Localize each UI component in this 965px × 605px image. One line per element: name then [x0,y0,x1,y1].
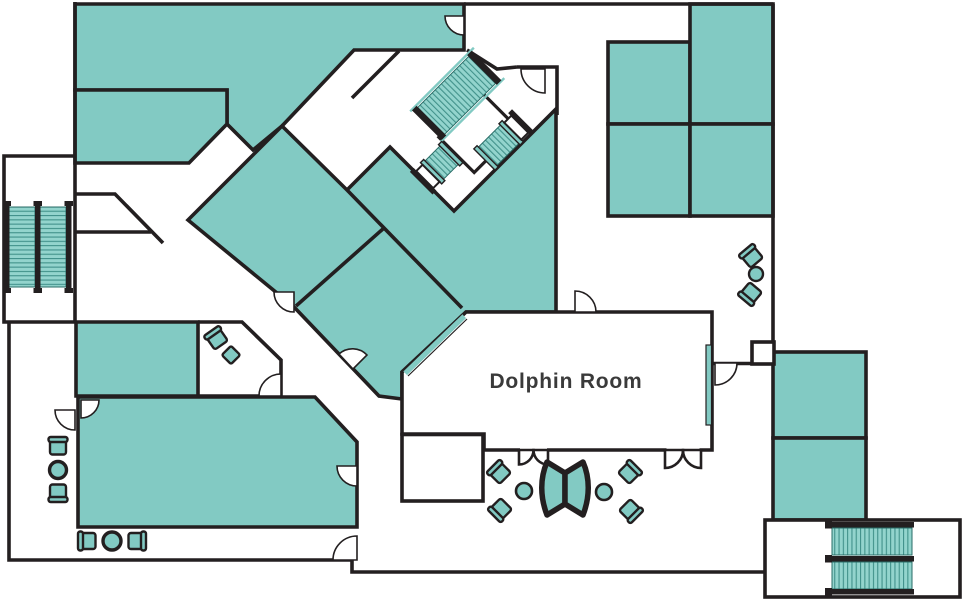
svg-text:Dolphin Room: Dolphin Room [489,370,642,393]
